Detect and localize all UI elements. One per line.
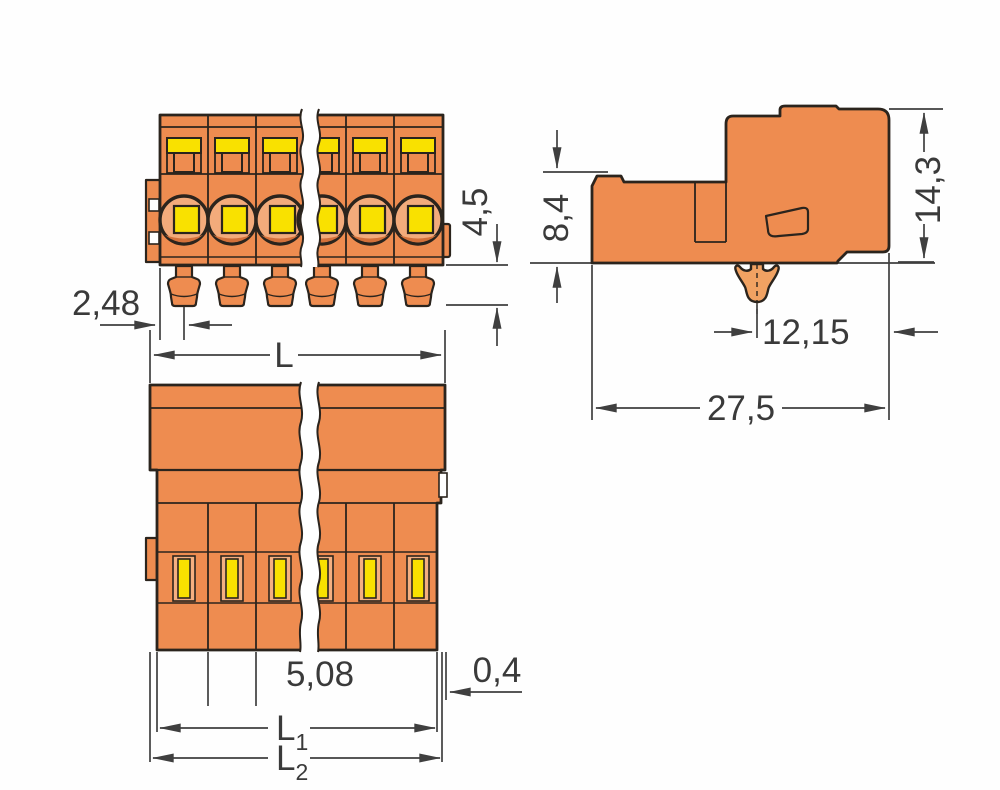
dim-depth-label: 27,5	[707, 389, 775, 428]
dim-total-height-label: 14,3	[909, 156, 948, 224]
solder-pin	[306, 266, 338, 306]
top-housing	[150, 385, 445, 650]
dim-front-height-label: 8,4	[537, 194, 576, 243]
top-view: L 5,08 0,4 L1 L2	[146, 330, 522, 785]
top-slot	[407, 556, 429, 601]
top-left-tab	[146, 538, 157, 580]
technical-drawing-page: 4,5 2,48 L	[0, 0, 1000, 790]
bracket-notch	[149, 232, 159, 244]
dim-pin-offset-label: 2,48	[72, 284, 140, 323]
dim-foot-offset-label: 12,15	[762, 313, 850, 352]
solder-pin	[354, 266, 386, 306]
dim-pitch-label: 5,08	[286, 655, 354, 694]
top-slot	[269, 556, 291, 601]
side-housing	[592, 106, 889, 263]
top-slot	[359, 556, 381, 601]
connector-drawing-svg: 4,5 2,48 L	[0, 0, 1000, 790]
dim-tab-label: 0,4	[473, 651, 522, 690]
front-view: 4,5 2,48	[72, 109, 508, 346]
dim-pin-length-label: 4,5	[456, 188, 495, 237]
side-view: 8,4 14,3 12,15 27,5	[530, 106, 948, 428]
solder-pin	[168, 266, 200, 306]
dim-length-label: L	[274, 336, 293, 375]
solder-pin	[216, 266, 248, 306]
solder-pin	[402, 266, 434, 306]
top-slot	[173, 556, 195, 601]
top-right-tab	[439, 473, 447, 497]
bracket-notch	[149, 199, 159, 211]
solder-pin	[264, 266, 296, 306]
top-slot	[221, 556, 243, 601]
